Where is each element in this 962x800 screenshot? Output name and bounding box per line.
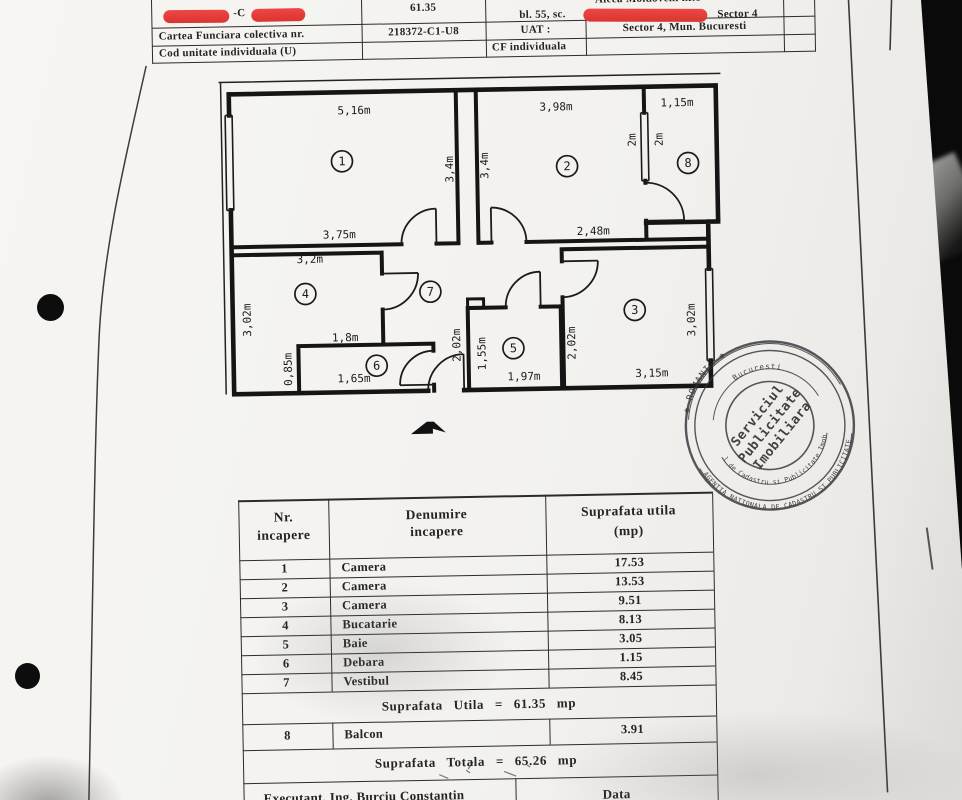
room-number-labels: 1 2 3 4 5 6 7 8 [299, 148, 695, 374]
address-bl: bl. 55, sc. [519, 8, 566, 21]
walls-interior [229, 86, 711, 395]
row-area: 3.91 [621, 722, 644, 737]
row-name: Baie [343, 636, 368, 651]
executant-label: Executant, Ing. Burciu Constantin [263, 787, 464, 800]
paper-edge-mark [927, 528, 933, 570]
row-area: 17.53 [614, 555, 644, 571]
redaction-bar [251, 8, 305, 22]
dimension-label: 3,4m [478, 152, 491, 179]
row-nr: 8 [284, 728, 291, 743]
floor-plan: 1 2 3 4 5 6 7 8 5,16m 3,4m 3,75m 3,98m 3… [218, 61, 735, 450]
address-line1: Aleea Moldoveni nr.8 [595, 0, 701, 6]
photographed-cadastral-document: -C 61.35 Aleea Moldoveni nr.8 bl. 55, sc… [0, 0, 962, 800]
row-name: Debara [343, 655, 385, 671]
dimension-label: 1,15m [660, 96, 694, 110]
dimension-label: 1,8m [332, 331, 359, 344]
row-nr: 4 [282, 618, 289, 633]
col-header-nr: Nr. [274, 509, 294, 525]
hole-punch [37, 294, 64, 321]
dimension-label: 3,15m [635, 366, 669, 380]
dimension-label: 3,75m [323, 228, 357, 242]
uat-label: UAT : [520, 23, 550, 36]
room-number: 1 [338, 154, 345, 168]
total-generala: Suprafata Totala = 65.26 mp [375, 752, 577, 772]
stamp-ring-bucuresti: Bucuresti [729, 357, 784, 383]
dimension-label: 3,02m [685, 303, 699, 337]
dimension-label: 1,55m [475, 337, 489, 371]
stamp-ring-romania: ✱ ROMANIA ✱ [675, 349, 738, 416]
row-nr: 2 [281, 580, 288, 595]
row-name: Bucatarie [342, 616, 397, 632]
row-area: 9.51 [618, 593, 641, 608]
dimension-label: 2m [626, 133, 639, 147]
dimension-label: 0,85m [281, 352, 295, 386]
row-nr: 6 [283, 656, 290, 671]
row-name: Camera [342, 579, 387, 595]
row-name: Camera [341, 560, 386, 576]
row-nr: 1 [281, 561, 288, 576]
room-number: 8 [684, 156, 691, 170]
col-header-nr2: incapere [257, 527, 311, 544]
row-area: 3.05 [619, 631, 642, 646]
dimension-label: 3,2m [296, 253, 323, 266]
row-area: 1.15 [619, 650, 642, 665]
col-header-denumire2: incapere [410, 523, 464, 540]
row-nr: 5 [282, 637, 289, 652]
room-number: 2 [563, 159, 570, 173]
room-number: 6 [373, 359, 380, 373]
cartea-funciara-label: Cartea Funciara colectiva nr. [159, 28, 305, 43]
plan-outline-thin [219, 73, 727, 394]
col-header-suprafata: Suprafata utila [581, 502, 676, 520]
dimension-label: 3,4m [443, 156, 456, 183]
room-number: 7 [427, 285, 434, 299]
left-frame-line [75, 66, 160, 800]
svg-text:Bucuresti: Bucuresti [729, 357, 784, 383]
cf-individuala-label: CF individuala [492, 40, 567, 53]
redacted-suffix: -C [233, 7, 245, 19]
redaction-bar [583, 9, 707, 22]
dimension-label: 5,16m [337, 104, 371, 118]
row-nr: 3 [282, 599, 289, 614]
document-content: -C 61.35 Aleea Moldoveni nr.8 bl. 55, sc… [0, 0, 962, 800]
room-number: 4 [302, 287, 309, 301]
uat-value: Sector 4, Mun. Bucuresti [623, 20, 747, 34]
row-area: 8.45 [620, 669, 643, 684]
row-name: Balcon [344, 727, 383, 743]
data-label: Data [603, 786, 631, 800]
dimension-label: 2m [652, 132, 665, 146]
dimension-label: 1,65m [337, 372, 371, 386]
row-name: Camera [342, 598, 387, 614]
room-number: 5 [510, 341, 517, 355]
address-sector: Sector 4 [717, 8, 758, 21]
dimension-label: 3,02m [241, 303, 255, 337]
redaction-bar [163, 10, 229, 24]
svg-text:✱ ROMANIA ✱: ✱ ROMANIA ✱ [675, 349, 738, 416]
entrance-arrow [411, 421, 446, 434]
paper-sheet: -C 61.35 Aleea Moldoveni nr.8 bl. 55, sc… [0, 0, 962, 800]
dimension-label: 1,97m [507, 370, 541, 384]
header-area-value: 61.35 [410, 2, 436, 14]
total-utila: Suprafata Utila = 61.35 mp [382, 695, 577, 715]
dimension-label: 3,98m [539, 100, 573, 114]
row-name: Vestibul [343, 674, 389, 690]
areas-table: Nr. incapere Denumire incapere Suprafata… [238, 492, 720, 800]
row-nr: 7 [283, 675, 290, 690]
right-short-line [889, 0, 893, 50]
cartea-funciara-value: 218372-C1-U8 [388, 25, 459, 38]
hole-punch [15, 663, 40, 689]
dimension-label: 2,48m [577, 224, 611, 238]
dimension-label: 2,02m [565, 326, 579, 360]
row-area: 13.53 [615, 574, 645, 590]
room-number: 3 [631, 303, 638, 317]
col-header-denumire: Denumire [406, 506, 468, 523]
dimension-label: 2,02m [450, 328, 464, 362]
cod-unitate-label: Cod unitate individuala (U) [159, 45, 297, 60]
col-header-mp: (mp) [614, 523, 644, 540]
row-area: 8.13 [619, 612, 642, 627]
